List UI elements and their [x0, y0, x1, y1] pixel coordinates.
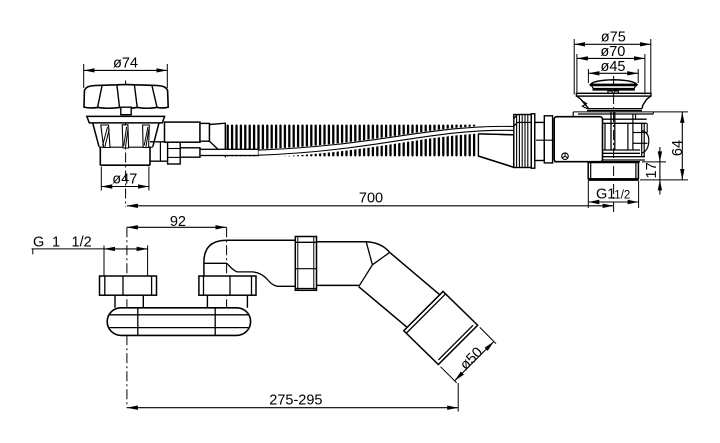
svg-text:1: 1: [52, 235, 60, 251]
svg-text:1/2: 1/2: [72, 235, 92, 251]
svg-text:ø45: ø45: [601, 59, 626, 75]
svg-text:ø74: ø74: [113, 56, 138, 72]
svg-text:700: 700: [359, 190, 383, 206]
svg-text:ø47: ø47: [112, 172, 137, 188]
svg-text:64: 64: [670, 140, 686, 156]
svg-text:17: 17: [644, 162, 660, 178]
svg-text:G: G: [33, 235, 44, 251]
svg-text:G1: G1: [596, 187, 615, 203]
svg-text:275-295: 275-295: [269, 393, 322, 409]
svg-text:1/2: 1/2: [614, 190, 630, 202]
svg-text:92: 92: [170, 214, 186, 230]
svg-text:ø70: ø70: [600, 44, 625, 60]
